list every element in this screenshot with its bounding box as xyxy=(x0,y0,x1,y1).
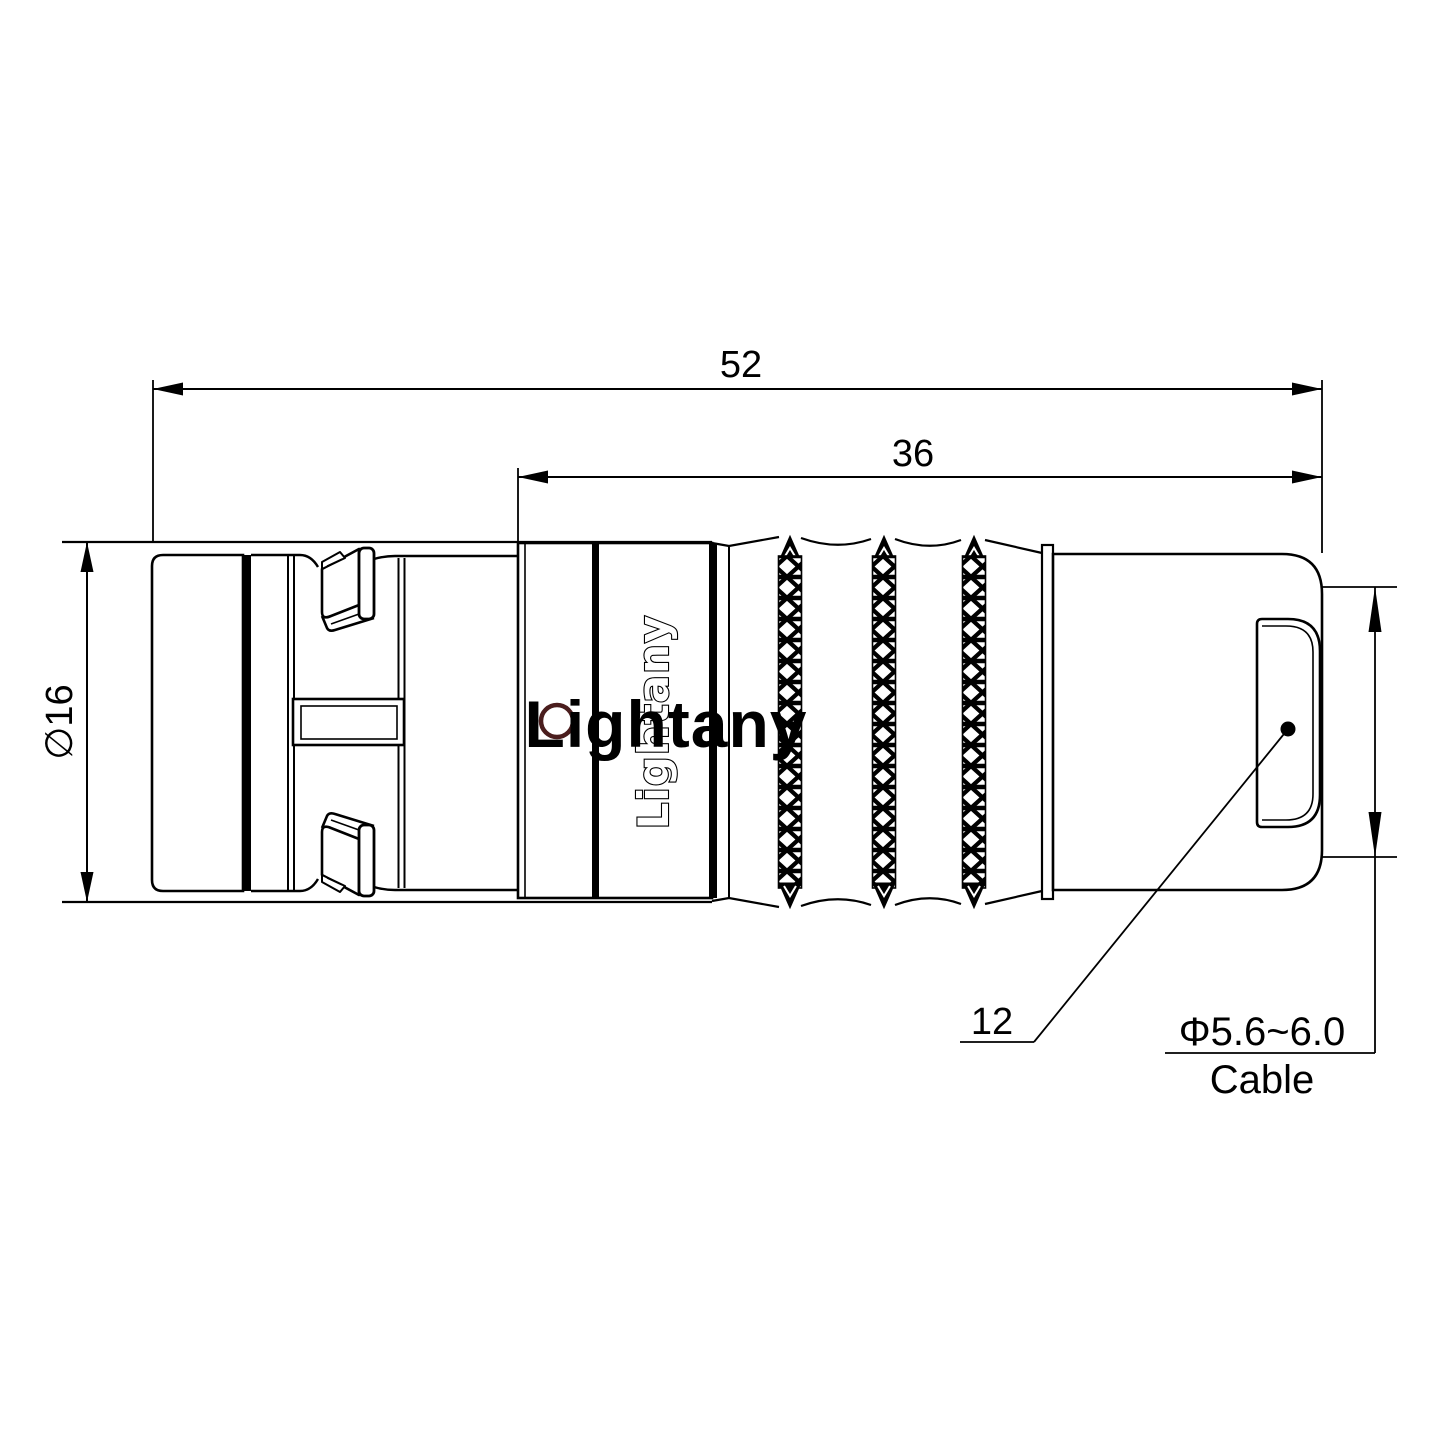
dim-16-label: ∅16 xyxy=(39,684,81,759)
dim-16-arrow-bottom xyxy=(81,872,94,902)
dim-12-label: 12 xyxy=(971,1001,1013,1043)
technical-drawing-canvas: 52 36 ∅16 xyxy=(0,0,1440,1440)
front-shell xyxy=(152,548,518,896)
dimension-rear-length: 36 xyxy=(518,433,1322,542)
cable-word-label: Cable xyxy=(1210,1058,1315,1102)
dim-52-arrow-left xyxy=(153,383,183,396)
grip-profile-top xyxy=(712,537,1042,553)
cable-spec-label: Φ5.6~6.0 xyxy=(1179,1010,1345,1054)
watermark-text: Lightany xyxy=(525,687,808,761)
knurl-band-2 xyxy=(873,536,896,908)
dim-12-arrow-bottom xyxy=(1369,812,1382,857)
rear-shell xyxy=(1053,554,1322,890)
clamp-ring xyxy=(1042,545,1053,899)
dim-36-arrow-left xyxy=(518,471,548,484)
grip-profile-bottom xyxy=(712,891,1042,907)
drawing-page: 52 36 ∅16 xyxy=(0,0,1440,1440)
dim-16-arrow-top xyxy=(81,542,94,572)
cable-leader-dot xyxy=(1281,722,1296,737)
front-shell-cap xyxy=(152,555,243,891)
dim-36-arrow-right xyxy=(1292,471,1322,484)
front-shell-ring xyxy=(244,555,251,891)
dim-12-arrow-top xyxy=(1369,587,1382,632)
dim-36-label: 36 xyxy=(892,433,934,475)
latch-tab-bottom xyxy=(322,813,374,896)
dim-52-label: 52 xyxy=(720,344,762,386)
latch-tab-top xyxy=(322,548,374,631)
dimension-overall-length: 52 xyxy=(153,344,1322,553)
dim-52-arrow-right xyxy=(1292,383,1322,396)
knurl-band-3 xyxy=(963,536,986,908)
